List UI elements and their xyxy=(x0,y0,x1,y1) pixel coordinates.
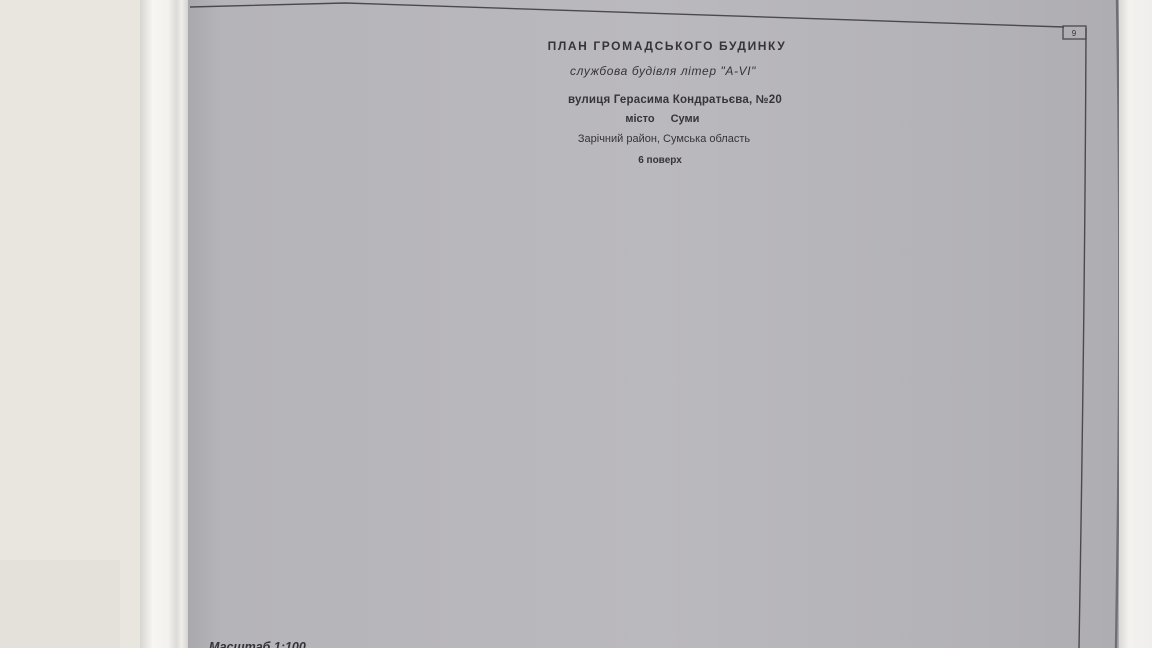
svg-text:6 поверх: 6 поверх xyxy=(638,155,682,166)
svg-text:місто: місто xyxy=(625,113,655,125)
svg-text:9: 9 xyxy=(1072,29,1077,38)
svg-text:службова будівля літер "А-VI": службова будівля літер "А-VI" xyxy=(570,64,756,78)
svg-text:Суми: Суми xyxy=(671,113,700,125)
svg-text:ПЛАН ГРОМАДСЬКОГО БУДИНКУ: ПЛАН ГРОМАДСЬКОГО БУДИНКУ xyxy=(548,39,787,53)
svg-text:Зарічний район, Сумська област: Зарічний район, Сумська область xyxy=(578,133,750,145)
svg-text:Масштаб 1:100: Масштаб 1:100 xyxy=(209,640,306,648)
svg-text:вулиця Герасима Кондратьєва,: вулиця Герасима Кондратьєва, №20 xyxy=(568,94,782,106)
